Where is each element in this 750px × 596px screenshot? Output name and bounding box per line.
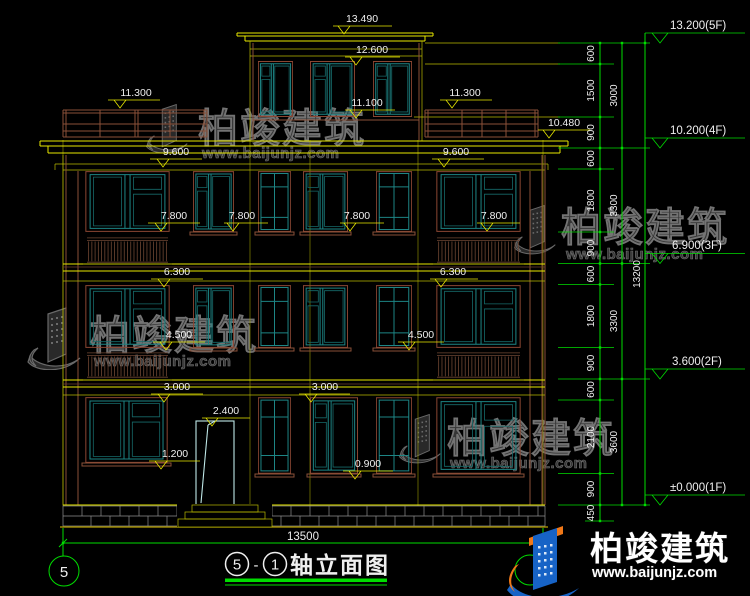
brand-name: 柏竣建筑 xyxy=(590,530,730,567)
brand-url: www.baijunjz.com xyxy=(591,565,717,581)
window xyxy=(376,286,411,348)
window xyxy=(437,286,520,348)
svg-text:1: 1 xyxy=(271,557,279,574)
svg-text:7.800: 7.800 xyxy=(229,210,255,222)
svg-text:2.400: 2.400 xyxy=(213,405,239,417)
svg-text:13.200(5F): 13.200(5F) xyxy=(670,20,726,32)
svg-text:900: 900 xyxy=(586,480,597,497)
overall-width-value: 13500 xyxy=(287,531,319,543)
window xyxy=(86,172,169,232)
dim-label-11300-left: 11.300 xyxy=(108,87,160,108)
svg-text:11.300: 11.300 xyxy=(120,87,151,99)
cad-elevation-screenshot: 柏竣建筑 www.baijunjz.com 柏竣建筑 www.baijunjz.… xyxy=(0,0,750,596)
level-marker-1f: ±0.000(1F) xyxy=(645,482,745,505)
dim-label-6300-left: 6.300 xyxy=(151,266,203,287)
svg-text:1500: 1500 xyxy=(586,79,597,102)
stone-base xyxy=(60,506,548,527)
dim-label-11300-right: 11.300 xyxy=(440,87,492,108)
window xyxy=(193,172,233,232)
balcony-railing xyxy=(87,238,168,262)
svg-text:900: 900 xyxy=(586,124,597,141)
chain-overall-value: 13200 xyxy=(632,260,643,288)
svg-text:6.300: 6.300 xyxy=(440,266,466,278)
entrance-steps xyxy=(177,504,272,527)
svg-text:7.800: 7.800 xyxy=(344,210,370,222)
level-marker-5f: 13.200(5F) xyxy=(645,20,745,43)
svg-text:6.900(3F): 6.900(3F) xyxy=(672,240,722,252)
title-underline xyxy=(225,579,387,583)
svg-text:4.500: 4.500 xyxy=(408,329,434,341)
svg-text:2100: 2100 xyxy=(586,425,597,448)
dim-label-13490: 13.490 xyxy=(333,13,392,34)
svg-text:9.600: 9.600 xyxy=(443,146,469,158)
window-sill xyxy=(255,232,294,235)
level-marker-2f: 3.600(2F) xyxy=(645,356,745,379)
svg-text:10.480: 10.480 xyxy=(548,117,580,129)
watermark-logo-icon xyxy=(515,206,556,254)
svg-text:4.500: 4.500 xyxy=(166,329,192,341)
svg-text:600: 600 xyxy=(586,265,597,282)
svg-text:600: 600 xyxy=(586,150,597,167)
svg-text:5: 5 xyxy=(60,564,68,581)
svg-text:10.200(4F): 10.200(4F) xyxy=(670,125,726,137)
svg-text:3600: 3600 xyxy=(609,430,620,453)
window xyxy=(310,398,357,473)
window xyxy=(376,172,411,232)
dim-label-7800-c: 7.800 xyxy=(340,210,384,231)
title-separator: - xyxy=(254,557,259,574)
svg-text:1.200: 1.200 xyxy=(162,448,188,460)
right-dimension-chain: 600 1500 900 600 1800 900 600 1800 900 6… xyxy=(558,20,745,522)
svg-text:1800: 1800 xyxy=(586,304,597,327)
balcony-railing xyxy=(437,353,520,377)
balcony-railing xyxy=(437,238,520,262)
entrance-door xyxy=(196,421,234,505)
svg-text:600: 600 xyxy=(586,45,597,62)
svg-text:3300: 3300 xyxy=(609,309,620,332)
roof-railing-left xyxy=(63,110,207,137)
svg-text:3000: 3000 xyxy=(609,84,620,107)
window-sill xyxy=(300,348,351,351)
window xyxy=(258,172,290,232)
third-floor-windows xyxy=(83,172,524,264)
drawing-title: 5 - 1 轴立面图 xyxy=(225,552,390,585)
dim-label-2400: 2.400 xyxy=(202,405,250,426)
svg-text:3.000: 3.000 xyxy=(164,381,190,393)
axis-bubble-left: 5 xyxy=(49,556,79,586)
svg-text:600: 600 xyxy=(586,381,597,398)
roof-railing-right xyxy=(425,110,538,137)
svg-text:5: 5 xyxy=(233,557,241,574)
svg-text:11.300: 11.300 xyxy=(449,87,480,99)
svg-text:7.800: 7.800 xyxy=(481,210,507,222)
svg-text:9.600: 9.600 xyxy=(163,146,189,158)
window xyxy=(86,398,167,463)
svg-text:12.600: 12.600 xyxy=(356,44,388,56)
svg-text:3300: 3300 xyxy=(609,194,620,217)
window-sill xyxy=(190,232,237,235)
watermark-3: 柏竣建筑 www.baijunjz.com xyxy=(28,308,258,370)
svg-text:3.000: 3.000 xyxy=(312,381,338,393)
dim-label-6300-right: 6.300 xyxy=(430,266,478,287)
level-marker-4f: 10.200(4F) xyxy=(645,125,745,148)
window-sill xyxy=(433,474,524,477)
elevation-drawing: 柏竣建筑 www.baijunjz.com 柏竣建筑 www.baijunjz.… xyxy=(0,0,750,596)
svg-text:450: 450 xyxy=(586,504,597,521)
window xyxy=(437,172,520,232)
svg-text:3.600(2F): 3.600(2F) xyxy=(672,356,722,368)
watermark-4: 柏竣建筑 www.baijunjz.com xyxy=(400,415,615,473)
window-sill xyxy=(373,232,415,235)
dim-label-10480: 10.480 xyxy=(538,117,590,138)
footer-brand: 柏竣建筑 www.baijunjz.com xyxy=(507,526,730,596)
svg-text:11.100: 11.100 xyxy=(351,97,382,109)
svg-text:7.800: 7.800 xyxy=(161,210,187,222)
window-sill xyxy=(255,474,294,477)
title-text: 轴立面图 xyxy=(290,552,390,578)
window-sill xyxy=(373,474,415,477)
svg-text:0.900: 0.900 xyxy=(355,458,381,470)
window xyxy=(258,286,290,348)
watermark-logo-icon xyxy=(28,308,80,370)
svg-text:6.300: 6.300 xyxy=(164,266,190,278)
chain-middle-values: 3000 3300 3300 3600 xyxy=(609,84,620,453)
svg-text:1800: 1800 xyxy=(586,189,597,212)
svg-text:900: 900 xyxy=(586,239,597,256)
dim-label-0900: 0.900 xyxy=(343,458,393,479)
svg-text:13.490: 13.490 xyxy=(346,13,378,25)
window xyxy=(258,398,290,473)
window-sill xyxy=(300,232,351,235)
svg-text:900: 900 xyxy=(586,354,597,371)
window-sill xyxy=(255,348,294,351)
svg-text:±0.000(1F): ±0.000(1F) xyxy=(670,482,726,494)
